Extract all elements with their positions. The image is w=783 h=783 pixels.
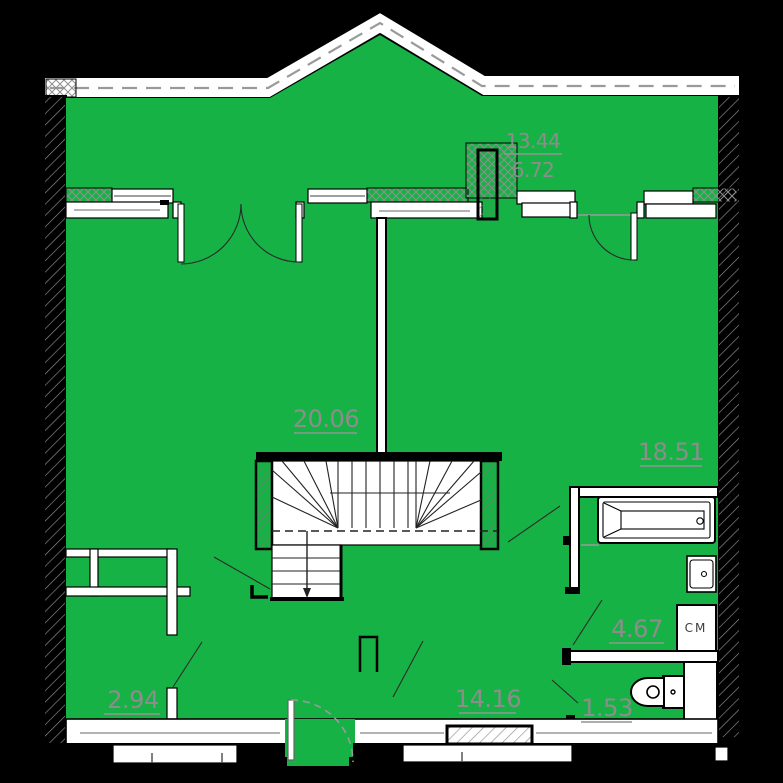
door-leaf-right bbox=[296, 204, 302, 262]
balcony-window bbox=[113, 745, 237, 763]
closet-area-label: 2.94 bbox=[107, 686, 158, 714]
wall-segment bbox=[517, 191, 575, 204]
corner-insulation-hatch bbox=[46, 79, 76, 97]
toilet-tank bbox=[663, 676, 684, 708]
room-right-area-label: 18.51 bbox=[638, 438, 704, 466]
bathroom-left-wall bbox=[570, 487, 579, 592]
bathroom-bottom-wall bbox=[570, 651, 718, 662]
wall-end-cap bbox=[565, 587, 580, 594]
window-sill-right bbox=[646, 204, 716, 218]
window-sill bbox=[522, 203, 576, 217]
wall-hatch-segment bbox=[367, 188, 468, 202]
wc-area-label: 1.53 bbox=[581, 694, 632, 722]
small-window bbox=[715, 747, 728, 761]
room-bottom-area-label: 14.16 bbox=[455, 685, 521, 713]
stair-right-wall bbox=[481, 461, 498, 549]
attic-total-area-label: 13.44 bbox=[506, 129, 561, 153]
door-jamb bbox=[637, 202, 644, 218]
bathroom-area-label: 4.67 bbox=[611, 615, 662, 643]
central-partition-wall bbox=[377, 218, 386, 455]
floor-plan-drawing: СМ bbox=[0, 0, 783, 783]
door-jamb bbox=[570, 202, 577, 218]
closet-wall-top bbox=[66, 549, 172, 557]
washing-machine: СМ bbox=[677, 605, 716, 651]
closet-side-wall-upper bbox=[167, 549, 177, 635]
door-leaf-left bbox=[178, 204, 184, 262]
attic-usable-area-label: 6.72 bbox=[512, 158, 555, 182]
window-sill-mid bbox=[371, 202, 482, 218]
wall-hatch-segment bbox=[693, 188, 737, 202]
toilet bbox=[631, 676, 684, 708]
door-stop bbox=[563, 536, 571, 545]
bathtub bbox=[598, 497, 715, 543]
door-leaf bbox=[631, 213, 637, 260]
stair-top-wall bbox=[256, 452, 502, 461]
floor-plan-canvas: СМ bbox=[0, 0, 783, 783]
stair-left-wall bbox=[256, 461, 272, 549]
bathroom-top-wall bbox=[570, 487, 718, 497]
balcony-door-opening bbox=[285, 719, 355, 766]
left-outer-wall bbox=[44, 96, 66, 768]
wall-hatch-segment bbox=[66, 188, 112, 202]
chimney-flue bbox=[478, 150, 497, 219]
room-left-area-label: 20.06 bbox=[293, 405, 359, 433]
door-jamb bbox=[279, 757, 287, 767]
closet-side-wall-lower bbox=[167, 688, 177, 722]
balcony-window bbox=[403, 745, 572, 762]
window-right bbox=[644, 191, 693, 204]
wall-end-cap bbox=[562, 648, 571, 665]
wall-pier-hatched bbox=[447, 726, 532, 744]
balcony-door-leaf bbox=[288, 700, 294, 760]
stair-well bbox=[272, 461, 481, 545]
washing-machine-label: СМ bbox=[685, 621, 708, 635]
washbasin bbox=[687, 556, 716, 592]
